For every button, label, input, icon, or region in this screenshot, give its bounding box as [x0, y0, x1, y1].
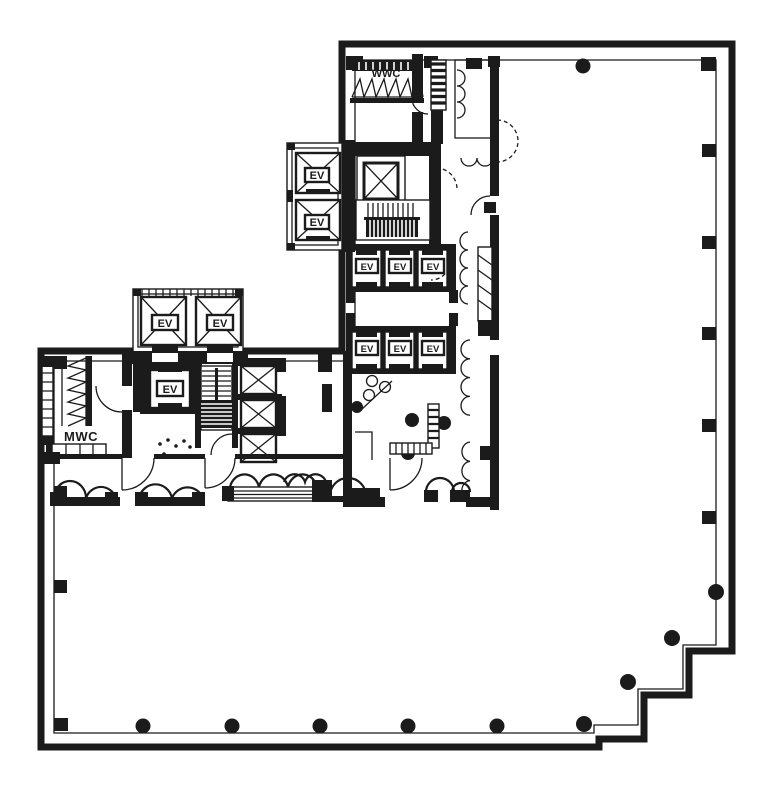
- vestibule: [424, 478, 470, 502]
- corner-fitting: [287, 143, 295, 150]
- column: [702, 144, 716, 157]
- column: [225, 719, 240, 734]
- wall-nub: [449, 313, 458, 326]
- elevator-label: EV: [394, 262, 407, 273]
- stall-wall: [86, 356, 92, 426]
- column: [466, 58, 482, 69]
- vestibule: [50, 481, 120, 506]
- elevator-cab: EV: [352, 250, 381, 287]
- column: [701, 57, 716, 71]
- wall: [318, 352, 332, 372]
- elevator-label: EV: [427, 262, 440, 273]
- door-opening: [152, 353, 178, 362]
- ramp-strip: [478, 247, 492, 321]
- elevator-label: EV: [213, 318, 228, 330]
- counter-edge: [355, 432, 372, 460]
- vestibule: [135, 484, 205, 506]
- wall: [429, 142, 441, 244]
- stair-wall: [232, 364, 238, 448]
- wall: [277, 358, 286, 372]
- elevator-cab: EV: [141, 297, 186, 351]
- elevator-label: EV: [310, 217, 325, 229]
- elevator-label: EV: [361, 344, 374, 355]
- wall: [342, 140, 355, 252]
- core-wall: [466, 497, 498, 507]
- column: [576, 59, 591, 74]
- entry-vestibules: [50, 474, 470, 506]
- wall: [238, 358, 282, 366]
- floor-plan-canvas: WWC: [0, 0, 775, 787]
- upper-service-core: WWC: [343, 54, 518, 510]
- fixture: [351, 401, 363, 413]
- wall-nub: [346, 313, 355, 326]
- column: [702, 419, 716, 432]
- shaft-x: [241, 400, 276, 428]
- elevator-label: EV: [427, 344, 440, 355]
- wall: [310, 454, 343, 459]
- column: [702, 236, 716, 249]
- wall: [122, 410, 132, 458]
- elevator-cab: EV: [418, 250, 447, 287]
- vestibule: [330, 478, 380, 502]
- corner-fitting: [287, 243, 295, 250]
- corner-fitting: [287, 190, 293, 202]
- ladder-rungs: [431, 64, 446, 103]
- wall: [412, 112, 423, 144]
- elevator-cab: EV: [196, 297, 241, 351]
- elevator-cab: EV: [418, 332, 447, 369]
- wall: [42, 454, 122, 459]
- service-room-northeast: [455, 58, 518, 162]
- column: [478, 320, 494, 336]
- elevator-cab: EV: [385, 250, 414, 287]
- fixture: [405, 413, 419, 427]
- pantry-room: [351, 376, 451, 461]
- elevator-label: EV: [394, 344, 407, 355]
- wall: [345, 142, 441, 156]
- scallop-edge: [457, 70, 465, 118]
- corridor-wall: [490, 355, 499, 510]
- stairs-left: [195, 364, 238, 455]
- column: [576, 716, 592, 732]
- column: [480, 446, 495, 460]
- elevator-label: EV: [158, 318, 173, 330]
- column: [136, 719, 151, 734]
- elevator-cab: EV: [296, 153, 340, 194]
- wall-nub: [346, 290, 355, 303]
- elevator-label: EV: [361, 262, 374, 273]
- east-corridor: [460, 56, 499, 510]
- door-arc: [96, 386, 122, 412]
- elevator-bank-upper: EV EV EV EV: [346, 244, 458, 374]
- stair-wall: [195, 364, 201, 448]
- elevator-bank-low-rise: EV EV: [128, 289, 248, 364]
- elevator-cab: EV: [385, 332, 414, 369]
- central-shaft-block: [345, 142, 457, 244]
- column: [490, 719, 505, 734]
- wall-nub: [42, 356, 56, 367]
- wall: [235, 454, 310, 459]
- elevator-label: EV: [163, 384, 178, 396]
- alcove-scallops: [461, 158, 493, 166]
- corner-fitting: [235, 289, 243, 296]
- elevator-cab: EV: [296, 200, 340, 241]
- column: [708, 584, 724, 600]
- womens-washroom: WWC: [350, 54, 428, 144]
- door-opening: [207, 353, 233, 362]
- shaft-x: [364, 163, 398, 199]
- column: [664, 630, 680, 646]
- left-service-core: EV EV EV: [42, 289, 422, 490]
- column: [620, 674, 636, 690]
- wall-nub: [449, 290, 458, 303]
- column: [702, 511, 716, 524]
- column: [702, 327, 716, 340]
- column: [54, 718, 68, 731]
- column: [484, 202, 496, 213]
- counter-edge: [361, 381, 392, 410]
- alcove-scallops: [461, 340, 470, 415]
- wall: [122, 352, 132, 386]
- stairs-upper: [356, 200, 430, 240]
- column: [401, 719, 416, 734]
- corridor-wall: [490, 56, 499, 196]
- elevator-label: EV: [310, 170, 325, 182]
- corner-fitting: [133, 289, 141, 296]
- stair-rail: [364, 217, 420, 220]
- elevator-bank-high-rise: EV EV: [287, 140, 355, 252]
- door-swing-dashed: [497, 120, 518, 162]
- wall: [277, 396, 286, 436]
- vestibule: [222, 474, 332, 502]
- shaft-x: [241, 366, 276, 394]
- table: [367, 376, 378, 387]
- alcove-scallops: [460, 232, 468, 304]
- column: [313, 719, 328, 734]
- wall: [322, 384, 332, 412]
- floor-plan: WWC: [0, 0, 775, 787]
- wall: [154, 454, 205, 459]
- elevator-cab: EV: [352, 332, 381, 369]
- wall: [412, 54, 423, 98]
- door-swing: [390, 458, 422, 490]
- column: [54, 580, 67, 593]
- mens-washroom-label: MWC: [64, 429, 98, 444]
- shaft-stack: [238, 352, 332, 462]
- duct-ladder: [431, 60, 446, 144]
- wall: [431, 110, 443, 144]
- core-wall: [343, 351, 352, 506]
- door-arc: [211, 434, 232, 455]
